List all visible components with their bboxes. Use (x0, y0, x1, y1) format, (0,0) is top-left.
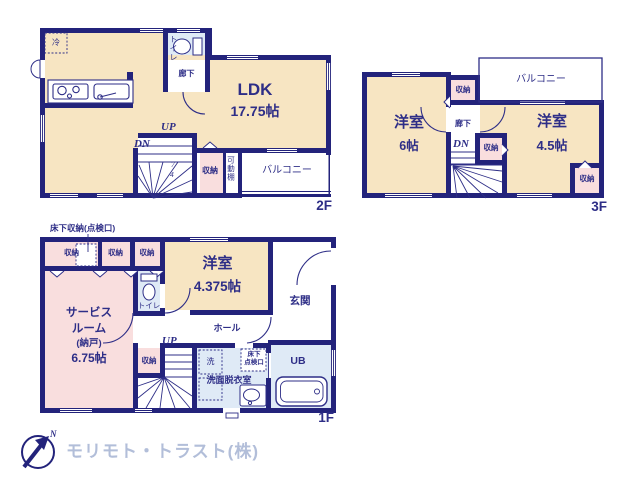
up-label-2f: UP (161, 122, 176, 133)
west-room45-size-label: 4.5帖 (505, 139, 599, 152)
floorplan-graphics (0, 0, 640, 480)
underfloor-hatch-label-2: 点検口 (241, 360, 267, 367)
closet-b-label-1f: 収納 (100, 249, 131, 257)
company-logo-text: モリモト・トラスト(株) (66, 443, 259, 460)
washroom-label: 洗面脱衣室 (200, 376, 258, 385)
underfloor-note-label: 床下収納(点検口) (50, 224, 115, 233)
floorplan-page: 冷 トイレ 廊下 LDK 17.75帖 UP DN 7 4 収納 可動棚 バルコ… (0, 0, 640, 480)
bathtub-icon (276, 377, 327, 406)
compass-icon (22, 436, 54, 468)
closet-c-label-1f: 収納 (133, 249, 161, 257)
hall-label-1f: ホール (208, 324, 246, 333)
closet-d-label-1f: 収納 (135, 357, 163, 365)
kitchen-counter-icon (48, 80, 133, 103)
unit-bath-label: UB (283, 356, 313, 367)
door-arc-hall-entrance (247, 317, 271, 343)
closet-label-2f: 収納 (197, 167, 223, 175)
movable-shelf-label: 可動棚 (227, 156, 235, 182)
service-room-size-label: 6.75帖 (50, 352, 128, 364)
service-room-label-3: (納戸) (50, 339, 128, 349)
dn-label-3f: DN (453, 139, 469, 150)
toilet-label-1f: トイレ (135, 302, 163, 310)
service-room-label-1: サービス (50, 308, 128, 320)
back-door-flap (226, 413, 238, 418)
vanity-sink-icon (240, 385, 266, 406)
ldk-label: LDK (180, 81, 330, 98)
toilet-label-2f: トイレ (169, 35, 177, 62)
west-room-size-label-1f: 4.375帖 (175, 280, 260, 294)
door-arc-front-entrance (297, 251, 331, 285)
up-label-1f: UP (162, 336, 177, 347)
fridge-label: 冷 (45, 39, 67, 47)
hallway-label-3f: 廊下 (451, 120, 475, 128)
west-room6-label: 洋室 (372, 115, 446, 130)
floor-label-3f: 3F (575, 200, 607, 214)
floor-label-1f: 1F (302, 411, 334, 425)
balcony-label-2f: バルコニー (245, 166, 329, 176)
closet-mid-label-3f: 収納 (479, 144, 503, 152)
service-room-label-2: ルーム (50, 324, 128, 336)
compass-north-label: N (50, 430, 57, 439)
dn-label-2f: DN (134, 139, 150, 150)
west-room-label-1f: 洋室 (180, 256, 255, 271)
closet-a-label-1f: 収納 (45, 249, 98, 257)
west-room6-size-label: 6帖 (372, 140, 446, 153)
balcony-label-3f: バルコニー (495, 75, 587, 85)
closet-corner-label-3f: 収納 (574, 175, 600, 183)
ldk-size-label: 17.75帖 (180, 104, 330, 118)
hallway-label-2f: 廊下 (168, 70, 205, 78)
west-room45-label: 洋室 (505, 114, 599, 129)
washer-label: 洗 (203, 358, 218, 366)
underfloor-hatch-label-1: 床下 (242, 352, 266, 359)
stair-step-number-top: 7 (171, 161, 175, 169)
floor-label-2f: 2F (300, 199, 332, 213)
stair-step-number-bottom: 4 (170, 171, 174, 179)
closet-top-label-3f: 収納 (451, 86, 475, 94)
entrance-label: 玄関 (277, 296, 323, 307)
